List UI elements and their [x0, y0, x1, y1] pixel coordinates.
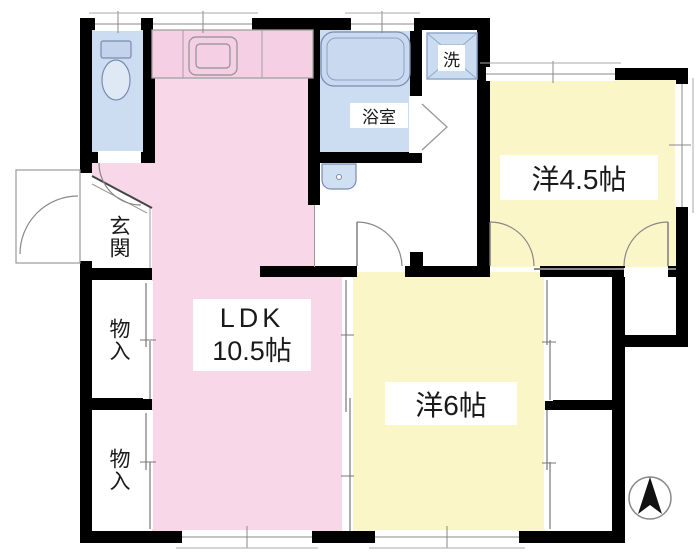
door-opening-bathroom — [409, 96, 423, 153]
window-6-bottom — [375, 530, 519, 544]
wall-top — [80, 18, 490, 30]
genkan-step-edge — [92, 176, 152, 208]
entrance-door-swing-arc — [20, 196, 78, 254]
label-washer: 洗 — [438, 45, 465, 71]
window-ldk-bottom — [182, 530, 312, 544]
label-storage-upper: 物入 — [103, 307, 133, 373]
label-storage-lower: 物入 — [103, 437, 133, 503]
room-toilet — [92, 30, 143, 152]
washer-pan-corner-1 — [427, 33, 441, 45]
compass-circle — [629, 477, 671, 519]
wall-storage-divider — [92, 398, 152, 410]
sliding-door-closet-upper — [544, 278, 553, 401]
label-ldk-line1: LDK — [220, 302, 285, 335]
sliding-door-storage-lower — [143, 411, 153, 529]
north-arrow-icon — [638, 477, 662, 514]
floor-plan: LDK 10.5帖 洋4.5帖 洋6帖 浴室 洗 玄関 物入 物入 — [0, 0, 700, 557]
wall-mid-ldk — [260, 266, 357, 277]
wall-45-closet-stub — [668, 266, 676, 277]
wall-toilet-right — [143, 18, 155, 163]
door-opening-entrance — [78, 173, 93, 261]
label-bathroom: 浴室 — [350, 103, 408, 128]
label-ldk: LDK 10.5帖 — [193, 299, 311, 371]
washbasin-icon — [322, 164, 356, 189]
label-western-6: 洋6帖 — [385, 382, 517, 425]
window-toilet — [95, 17, 141, 31]
wall-bottom — [80, 531, 625, 543]
washbasin-drain — [337, 175, 342, 180]
sliding-door-ldk-6 — [342, 278, 353, 531]
window-bathroom — [351, 17, 414, 31]
genkan-step-wedge — [92, 163, 152, 208]
wall-bath-left — [308, 30, 320, 205]
window-kitchen — [153, 17, 252, 31]
wall-genkan-top — [80, 268, 152, 280]
door-swing-arc-6 — [357, 222, 402, 266]
bathroom-folding-door-icon — [422, 104, 447, 150]
label-ldk-line2: 10.5帖 — [212, 335, 292, 368]
wall-bath-bottom — [308, 152, 422, 163]
room-bathroom — [320, 30, 410, 152]
window-45-right — [675, 84, 689, 207]
sliding-door-storage-upper — [143, 281, 153, 399]
label-western-45: 洋4.5帖 — [500, 155, 658, 200]
wall-closet-divider — [545, 400, 612, 410]
wall-closet-right — [612, 268, 625, 543]
wall-closet-top — [540, 266, 625, 277]
wall-mid-hall — [405, 266, 490, 277]
window-45-top — [486, 67, 615, 81]
washer-pan-corner-4 — [463, 67, 477, 79]
room-ldk-upper — [152, 30, 308, 267]
door-opening-45-closet — [624, 268, 668, 277]
door-opening-toilet — [98, 151, 141, 164]
washer-pan-corner-2 — [463, 33, 477, 45]
entrance-door-frame — [16, 170, 80, 263]
toilet-door-swing-arc — [99, 163, 141, 205]
wall-left — [80, 18, 92, 543]
label-entrance: 玄関 — [103, 207, 133, 267]
room-ldk-strip — [308, 205, 315, 267]
sliding-door-closet-lower — [544, 410, 553, 529]
